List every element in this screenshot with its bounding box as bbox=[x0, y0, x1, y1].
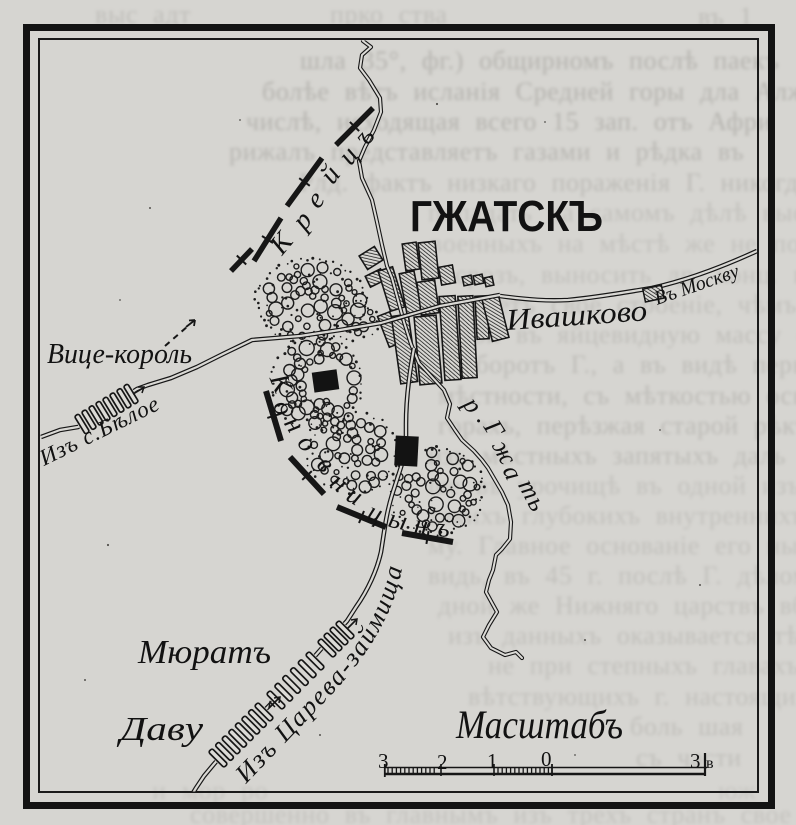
svg-text:Вице-король: Вице-король bbox=[47, 338, 192, 370]
svg-text:в: в bbox=[706, 755, 714, 772]
svg-text:3: 3 bbox=[690, 749, 701, 773]
svg-text:Масштабъ: Масштабъ bbox=[455, 702, 623, 747]
svg-text:р: р bbox=[285, 205, 319, 237]
svg-text:ъ: ъ bbox=[435, 512, 452, 543]
svg-text:Даву: Даву bbox=[116, 711, 204, 748]
svg-text:о: о bbox=[292, 428, 324, 457]
svg-text:е: е bbox=[300, 185, 332, 214]
svg-text:1: 1 bbox=[487, 749, 498, 773]
svg-text:Въ Москву: Въ Москву bbox=[651, 260, 741, 309]
svg-text:3: 3 bbox=[378, 749, 389, 773]
svg-text:К: К bbox=[263, 225, 300, 261]
svg-text:0: 0 bbox=[541, 747, 552, 771]
svg-text:й: й bbox=[314, 160, 347, 190]
svg-text:2: 2 bbox=[437, 750, 448, 774]
svg-text:Мюратъ: Мюратъ bbox=[137, 634, 271, 671]
svg-text:ГЖАТСКЪ: ГЖАТСКЪ bbox=[410, 192, 603, 241]
